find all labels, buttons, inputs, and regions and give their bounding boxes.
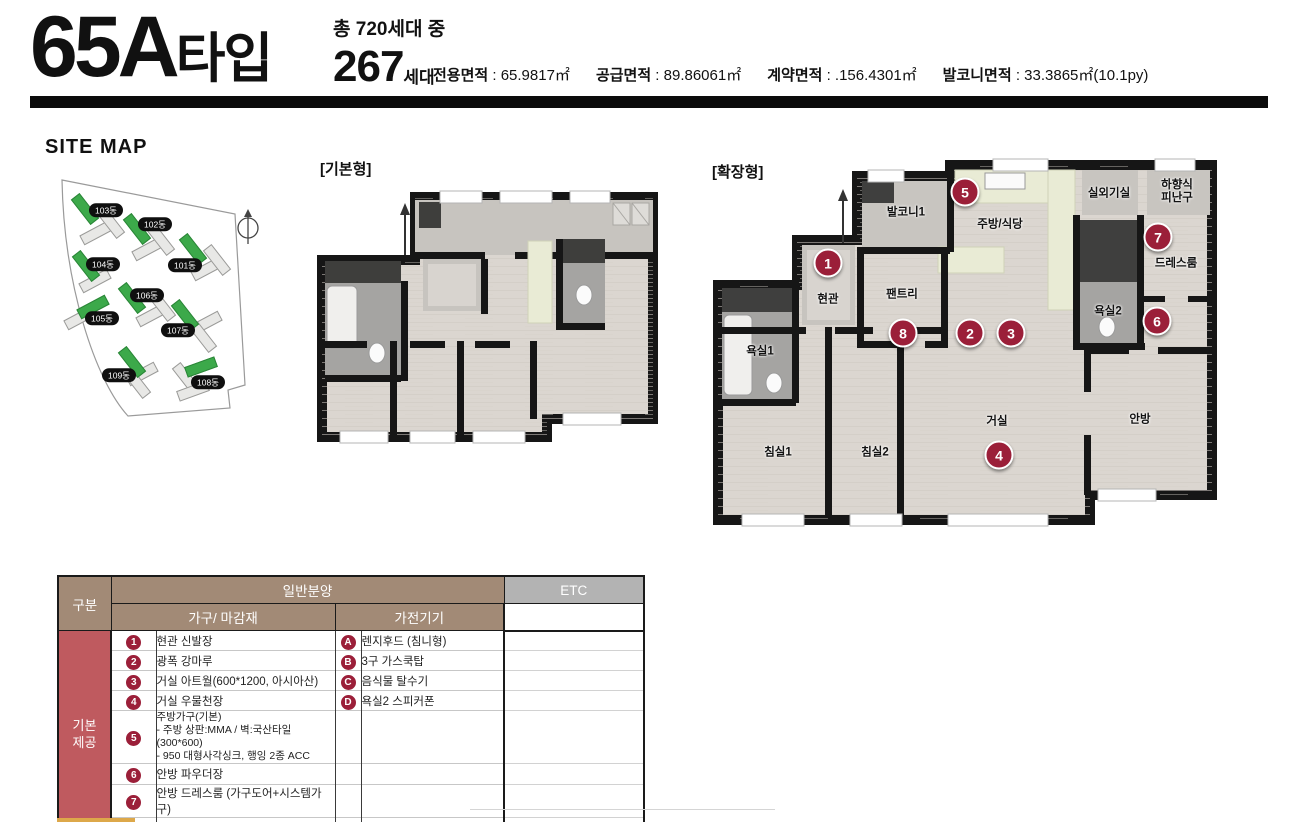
room-label: 현관 — [817, 294, 838, 307]
room-label: 하향식 피난구 — [1161, 179, 1193, 205]
site-map-buildings: 103동102동101동104동106동105동107동109동108동 — [40, 165, 270, 430]
area-spec: 공급면적 : 89.86061㎡ — [596, 64, 741, 85]
letter-badge: B — [341, 655, 356, 670]
table-row: 4거실 우물천장D욕실2 스피커폰 — [58, 691, 644, 711]
room-label: 침실1 — [764, 447, 792, 460]
room-label: 침실2 — [861, 447, 889, 460]
letter-badge: A — [341, 635, 356, 650]
etc-cell — [504, 631, 644, 651]
letter-badge: D — [341, 695, 356, 710]
number-badge: 5 — [126, 731, 141, 746]
etc-cell — [504, 651, 644, 671]
letter-badge: C — [341, 675, 356, 690]
room-label: 거실 — [986, 416, 1007, 429]
appliance-item — [361, 785, 504, 818]
appliance-item: 음식물 탈수기 — [361, 671, 504, 691]
number-badge: 4 — [126, 695, 141, 710]
col-header-appliance: 가전기기 — [335, 604, 504, 631]
table-row: 7안방 드레스룸 (가구도어+시스템가구) — [58, 785, 644, 818]
etc-cell — [504, 711, 644, 764]
area-spec: 전용면적 : 65.9817㎡ — [433, 64, 570, 85]
unit-count-block: 총 720세대 중 267 세대 — [333, 20, 445, 89]
area-spec: 발코니면적 : 33.3865㎡(10.1py) — [943, 64, 1149, 85]
item-marker-badge: 1 — [814, 249, 843, 278]
room-label: 발코니1 — [887, 207, 925, 220]
furniture-item: 현관 신발장 — [156, 631, 335, 651]
appliance-item: 렌지후드 (침니형) — [361, 631, 504, 651]
etc-cell — [504, 818, 644, 822]
etc-cell — [504, 671, 644, 691]
furniture-item: 안방 드레스룸 (가구도어+시스템가구) — [156, 785, 335, 818]
item-marker-badge: 5 — [951, 178, 980, 207]
next-section-edge — [57, 818, 135, 822]
building-label: 103동 — [89, 203, 123, 217]
col-header-furniture: 가구/ 마감재 — [111, 604, 335, 631]
table-row: 5주방가구(기본) - 주방 상판:MMA / 벽:국산타일(300*600) … — [58, 711, 644, 764]
number-badge: 2 — [126, 655, 141, 670]
furniture-item: 거실 아트월(600*1200, 아시아산) — [156, 671, 335, 691]
appliance-item — [361, 764, 504, 785]
building-label: 106동 — [130, 288, 164, 302]
table-row: 6안방 파우더장 — [58, 764, 644, 785]
building-label: 109동 — [102, 368, 136, 382]
number-badge: 6 — [126, 768, 141, 783]
room-label: 욕실2 — [1094, 306, 1122, 319]
unit-type-suffix: 타입 — [176, 32, 271, 90]
units-suffix: 세대 — [403, 69, 434, 89]
options-table: 구분일반분양ETC가구/ 마감재가전기기기본 제공1현관 신발장A렌지후드 (침… — [57, 575, 645, 822]
unit-type-code: 65A — [30, 4, 176, 90]
table-row: 2광폭 강마루B3구 가스쿡탑 — [58, 651, 644, 671]
etc-cell — [504, 691, 644, 711]
etc-cell — [504, 785, 644, 818]
entry-arrow — [400, 203, 410, 255]
item-marker-badge: 3 — [997, 319, 1026, 348]
table-row: 8팬트리 가구도어 — [58, 818, 644, 822]
page-title: 65A 타입 — [30, 4, 271, 90]
furniture-item: 팬트리 가구도어 — [156, 818, 335, 822]
unit-type-brochure-page: 65A 타입 총 720세대 중 267 세대 전용면적 : 65.9817㎡공… — [0, 0, 1300, 822]
item-marker-badge: 6 — [1143, 307, 1172, 336]
number-badge: 1 — [126, 635, 141, 650]
appliance-item: 욕실2 스피커폰 — [361, 691, 504, 711]
col-header-etc: ETC — [504, 576, 644, 604]
room-label: 안방 — [1129, 414, 1150, 427]
building-label: 108동 — [191, 375, 225, 389]
table-tail-line — [470, 809, 775, 810]
room-label: 드레스룸 — [1155, 258, 1197, 271]
total-units-label: 총 720세대 중 — [333, 20, 445, 39]
units-count: 267 — [333, 45, 403, 89]
item-marker-badge: 2 — [956, 319, 985, 348]
basic-floor-plan — [315, 155, 665, 455]
building-label: 101동 — [168, 258, 202, 272]
furniture-item: 안방 파우더장 — [156, 764, 335, 785]
building-label: 102동 — [138, 217, 172, 231]
extended-plan-overlay: 발코니1주방/식당실외기실하향식 피난구현관팬트리드레스룸욕실2욕실1침실1침실… — [710, 155, 1220, 530]
col-header-gubun: 구분 — [58, 576, 111, 631]
extended-floor-plan: 발코니1주방/식당실외기실하향식 피난구현관팬트리드레스룸욕실2욕실1침실1침실… — [710, 155, 1220, 530]
header-divider — [30, 96, 1268, 108]
table-row: 3거실 아트월(600*1200, 아시아산)C음식물 탈수기 — [58, 671, 644, 691]
item-marker-badge: 7 — [1144, 223, 1173, 252]
building-label: 105동 — [85, 311, 119, 325]
site-map-title: SITE MAP — [45, 136, 147, 159]
room-label: 팬트리 — [886, 289, 918, 302]
area-spec-list: 전용면적 : 65.9817㎡공급면적 : 89.86061㎡계약면적 : .1… — [433, 64, 1148, 85]
row-group-label: 기본 제공 — [58, 631, 111, 822]
col-header-general: 일반분양 — [111, 576, 504, 604]
number-badge: 7 — [126, 795, 141, 810]
item-marker-badge: 4 — [985, 441, 1014, 470]
item-marker-badge: 8 — [889, 319, 918, 348]
etc-cell — [504, 764, 644, 785]
building-label: 104동 — [86, 257, 120, 271]
room-label: 주방/식당 — [977, 219, 1023, 232]
area-spec: 계약면적 : .156.4301㎡ — [767, 64, 916, 85]
appliance-item — [361, 711, 504, 764]
number-badge: 3 — [126, 675, 141, 690]
site-map: 103동102동101동104동106동105동107동109동108동 — [40, 165, 270, 430]
appliance-item — [361, 818, 504, 822]
room-label: 욕실1 — [746, 346, 774, 359]
room-label: 실외기실 — [1088, 188, 1130, 201]
table-row: 기본 제공1현관 신발장A렌지후드 (침니형) — [58, 631, 644, 651]
furniture-item: 광폭 강마루 — [156, 651, 335, 671]
building-label: 107동 — [161, 323, 195, 337]
appliance-item: 3구 가스쿡탑 — [361, 651, 504, 671]
furniture-item: 주방가구(기본) - 주방 상판:MMA / 벽:국산타일(300*600) -… — [156, 711, 335, 764]
furniture-item: 거실 우물천장 — [156, 691, 335, 711]
